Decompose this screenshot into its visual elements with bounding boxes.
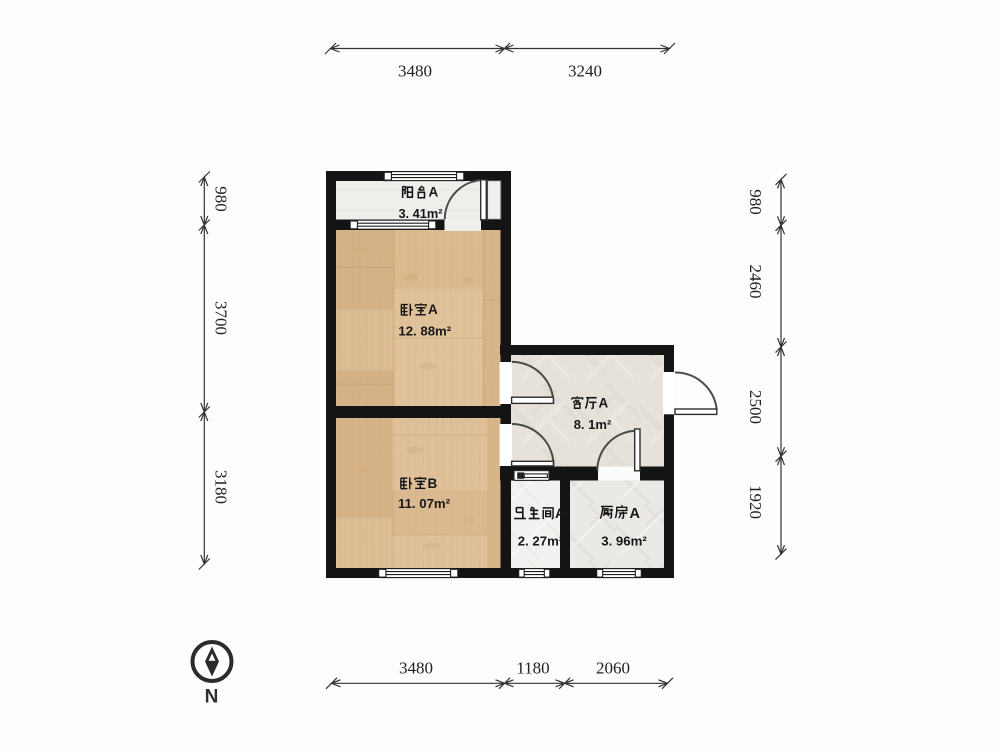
svg-text:2460: 2460 xyxy=(746,265,765,299)
svg-text:3480: 3480 xyxy=(398,62,432,81)
svg-text:3480: 3480 xyxy=(399,659,433,678)
svg-text:3. 96m²: 3. 96m² xyxy=(601,534,647,549)
svg-text:A: A xyxy=(429,185,439,200)
svg-text:3240: 3240 xyxy=(568,62,602,81)
svg-text:2. 27m²: 2. 27m² xyxy=(518,534,564,549)
svg-text:12. 88m²: 12. 88m² xyxy=(398,323,451,338)
svg-text:A: A xyxy=(555,505,565,521)
svg-text:1920: 1920 xyxy=(746,485,765,519)
svg-text:B: B xyxy=(428,476,438,491)
svg-text:980: 980 xyxy=(212,186,231,212)
svg-text:3180: 3180 xyxy=(212,470,231,504)
svg-text:8. 1m²: 8. 1m² xyxy=(574,417,612,432)
svg-text:11. 07m²: 11. 07m² xyxy=(398,496,451,511)
svg-text:A: A xyxy=(599,395,609,410)
svg-text:3. 41m²: 3. 41m² xyxy=(398,206,442,221)
svg-text:1180: 1180 xyxy=(516,659,549,678)
svg-text:A: A xyxy=(428,302,438,317)
svg-text:980: 980 xyxy=(746,189,765,215)
svg-text:2060: 2060 xyxy=(596,659,630,678)
svg-text:3700: 3700 xyxy=(212,301,231,335)
svg-text:N: N xyxy=(205,687,219,708)
svg-text:A: A xyxy=(630,506,641,522)
svg-text:2500: 2500 xyxy=(746,390,765,424)
